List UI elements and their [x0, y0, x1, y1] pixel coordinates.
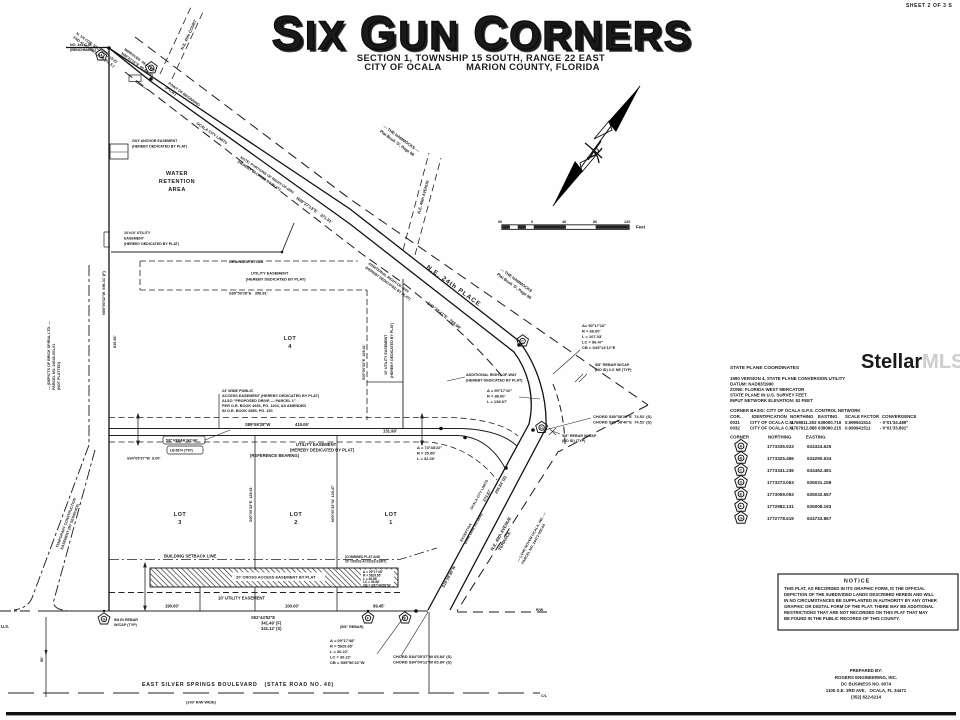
- svg-text:STATE PLANE IN U.S. SURVEY FEE: STATE PLANE IN U.S. SURVEY FEET: [730, 393, 807, 398]
- svg-text:(352) 622-6214: (352) 622-6214: [851, 695, 882, 700]
- svg-text:GUY ANCHOR EASEMENT: GUY ANCHOR EASEMENT: [132, 139, 178, 143]
- svg-text:635008.193: 635008.193: [807, 504, 832, 509]
- svg-text:PER O.R. BOOK 4936, PG. 1204,: PER O.R. BOOK 4936, PG. 1204, AS AMENDED: [222, 404, 306, 408]
- svg-text:(HEREBY DEDICATED BY PLAT): (HEREBY DEDICATED BY PLAT): [132, 145, 188, 149]
- svg-text:1773059.093: 1773059.093: [767, 492, 794, 497]
- svg-text:2: 2: [294, 520, 298, 526]
- svg-text:(NOT PLATTED): (NOT PLATTED): [57, 361, 61, 390]
- svg-text:341.12' (S): 341.12' (S): [261, 626, 282, 631]
- svg-text:S89°59'28"W: S89°59'28"W: [245, 422, 270, 427]
- svg-text:(HEREBY DEDICATED BY PLAT): (HEREBY DEDICATED BY PLAT): [124, 242, 180, 246]
- svg-text:(REFERENCE BEARING): (REFERENCE BEARING): [250, 453, 300, 458]
- svg-text:C: C: [521, 339, 524, 343]
- svg-text:UTILITY EASEMENT: UTILITY EASEMENT: [296, 442, 337, 447]
- svg-text:EAST SILVER SPRINGS BOULEVA: EAST SILVER SPRINGS BOULEVARD: [142, 682, 258, 688]
- svg-text:ACCESS EASEMENT (HEREBY DEDICA: ACCESS EASEMENT (HEREBY DEDICATED BY PLA…: [222, 394, 320, 398]
- svg-text:1773325.466: 1773325.466: [767, 456, 794, 461]
- svg-text:4: 4: [288, 344, 292, 350]
- svg-text:1772982.131: 1772982.131: [767, 504, 794, 509]
- svg-text:10'x10' UTILITY: 10'x10' UTILITY: [124, 231, 151, 235]
- svg-text:SIX GUN CORNERS: SIX GUN CORNERS: [272, 6, 693, 59]
- svg-text:CHORD S89°58'40"E 74.51' (S: CHORD S89°58'40"E 74.51' (S): [593, 420, 652, 425]
- svg-text:LOT: LOT: [385, 512, 398, 518]
- svg-text:CITY OF OCALA C.M.: CITY OF OCALA C.M.: [750, 420, 794, 425]
- svg-text:(HEREBY DEDICATED BY PLAT): (HEREBY DEDICATED BY PLAT): [246, 277, 306, 282]
- svg-text:A: A: [740, 444, 743, 449]
- svg-text:ADDITIONAL RIGHT-OF-WAY: ADDITIONAL RIGHT-OF-WAY: [466, 373, 517, 377]
- svg-text:Δ = 09°17'48": Δ = 09°17'48": [330, 638, 355, 643]
- svg-text:NOTICE: NOTICE: [844, 579, 870, 585]
- svg-text:MARION COUNTY, FLORIDA: MARION COUNTY, FLORIDA: [466, 62, 600, 72]
- svg-text:341.49' (F): 341.49' (F): [261, 621, 282, 626]
- svg-text:L = 138.67': L = 138.67': [487, 399, 507, 404]
- svg-text:L = 32.20': L = 32.20': [417, 456, 435, 461]
- svg-text:1772778.619: 1772778.619: [767, 516, 794, 521]
- svg-text:UTILITY EASEMENT: UTILITY EASEMENT: [251, 271, 289, 276]
- svg-text:S89°59'28"E 358.81': S89°59'28"E 358.81': [229, 291, 268, 296]
- svg-text:IN O.R. BOOK 4985, PG. 150: IN O.R. BOOK 4985, PG. 150: [222, 409, 273, 413]
- svg-text:INPUT NETWORK ELEVATION: 52 FE: INPUT NETWORK ELEVATION: 52 FEET: [730, 398, 813, 403]
- svg-text:CITY OF OCALA: CITY OF OCALA: [364, 62, 441, 72]
- svg-text:24' WIDE PUBLIC: 24' WIDE PUBLIC: [222, 389, 254, 393]
- svg-text:(NO ID) 0.3' NE (TYP): (NO ID) 0.3' NE (TYP): [595, 368, 632, 372]
- svg-text:CB = S55°56'22"W: CB = S55°56'22"W: [330, 660, 365, 665]
- svg-text:L = 107.33': L = 107.33': [582, 334, 602, 339]
- svg-text:— (DEPICTS OF BRICK SPIRAL LTD: — (DEPICTS OF BRICK SPIRAL LTD. —: [47, 321, 51, 390]
- svg-text:ZONE: FLORIDA WEST MERCATOR: ZONE: FLORIDA WEST MERCATOR: [730, 387, 805, 392]
- svg-text:(100' R/W WIDE): (100' R/W WIDE): [186, 700, 217, 705]
- svg-text:50': 50': [39, 657, 44, 662]
- svg-text:R = 68.00': R = 68.00': [582, 329, 600, 334]
- svg-text:CHORD S84°04'12"W 65.84' (S: CHORD S84°04'12"W 65.84' (S): [393, 660, 452, 665]
- svg-text:W/CAP (TYP): W/CAP (TYP): [114, 623, 138, 627]
- svg-text:CITY OF OCALA C.M.: CITY OF OCALA C.M.: [750, 426, 794, 431]
- svg-text:LOT: LOT: [174, 512, 187, 518]
- svg-text:StellarMLS: StellarMLS: [861, 351, 960, 373]
- svg-text:EASEMENT: EASEMENT: [124, 237, 145, 241]
- svg-text:634733.867: 634733.867: [807, 516, 832, 521]
- svg-text:635032.557: 635032.557: [807, 492, 832, 497]
- svg-text:R = 5829.65': R = 5829.65': [330, 644, 353, 649]
- svg-text:(NO ID) (TYP): (NO ID) (TYP): [562, 439, 586, 443]
- svg-text:Δ = 73°48'22": Δ = 73°48'22": [417, 445, 442, 450]
- svg-text:DATUM: NAD83/1990: DATUM: NAD83/1990: [730, 382, 774, 387]
- svg-text:20' CROSS ACCESS EASEMENT BY P: 20' CROSS ACCESS EASEMENT BY PLAT: [236, 575, 316, 580]
- svg-text:0032: 0032: [730, 426, 740, 431]
- svg-text:CHORD S89°58'23"E 74.51' (S: CHORD S89°58'23"E 74.51' (S): [593, 414, 652, 419]
- svg-text:STATE PLANE COORDINATES: STATE PLANE COORDINATES: [730, 365, 800, 371]
- svg-text:0: 0: [531, 220, 533, 224]
- svg-text:EASTING: EASTING: [806, 435, 826, 440]
- svg-text:IDENTIFICATION: IDENTIFICATION: [752, 414, 787, 419]
- svg-text:Δ= 90°17'10": Δ= 90°17'10": [582, 323, 606, 328]
- svg-text:ROGERS ENGINEERING, INC.: ROGERS ENGINEERING, INC.: [835, 675, 897, 680]
- svg-text:635031.158: 635031.158: [807, 480, 832, 485]
- svg-text:SHEET 2 OF 3 S: SHEET 2 OF 3 S: [906, 3, 953, 9]
- svg-text:10' UTILITY EASEMENT: 10' UTILITY EASEMENT: [384, 334, 388, 375]
- svg-text:THIS PLAT, AS RECORDED IN ITS: THIS PLAT, AS RECORDED IN ITS GRAPHIC FO…: [784, 586, 925, 591]
- svg-text:(HEREBY DEDICATED BY PLAT): (HEREBY DEDICATED BY PLAT): [290, 448, 355, 453]
- svg-text:Δ = 90°17'10": Δ = 90°17'10": [487, 388, 512, 393]
- svg-text:5/8 IN REBAR: 5/8 IN REBAR: [114, 618, 138, 622]
- svg-text:(COMBINED PLAT AND: (COMBINED PLAT AND: [345, 555, 381, 559]
- svg-text:CORNER: CORNER: [730, 435, 750, 440]
- svg-text:A: A: [100, 53, 103, 57]
- svg-text:AREA: AREA: [168, 187, 186, 193]
- svg-text:- 0°01'33.891": - 0°01'33.891": [880, 426, 908, 431]
- svg-text:- 0°01'34.489": - 0°01'34.489": [880, 420, 908, 425]
- svg-text:419.06': 419.06': [295, 422, 309, 427]
- svg-text:1: 1: [389, 520, 393, 526]
- svg-text:639000.719: 639000.719: [818, 420, 842, 425]
- svg-text:CB = S45°14'12"E: CB = S45°14'12"E: [582, 345, 616, 350]
- svg-text:(HEREBY DEDICATED BY PLAT): (HEREBY DEDICATED BY PLAT): [390, 322, 394, 378]
- svg-text:D: D: [540, 426, 543, 430]
- svg-text:100.00': 100.00': [285, 604, 299, 609]
- svg-text:S52°44'52"E: S52°44'52"E: [251, 615, 275, 620]
- svg-text:120: 120: [624, 220, 630, 224]
- svg-text:RETENTION: RETENTION: [159, 179, 195, 185]
- svg-text:DC BUSINESS NO. 6074: DC BUSINESS NO. 6074: [841, 682, 892, 687]
- svg-text:NORTHING: NORTHING: [790, 414, 814, 419]
- svg-text:99.45': 99.45': [373, 604, 384, 609]
- svg-text:E: E: [740, 492, 743, 497]
- svg-text:CORNER BASIS: CITY OF OCALA G.: CORNER BASIS: CITY OF OCALA G.P.S. CONTR…: [730, 408, 861, 413]
- svg-text:5/8" REBAR W/CAP: 5/8" REBAR W/CAP: [562, 434, 597, 438]
- svg-text:S00°00'32"E 129.41': S00°00'32"E 129.41': [362, 344, 366, 380]
- svg-text:1773273.063: 1773273.063: [767, 480, 794, 485]
- svg-text:LOT: LOT: [290, 512, 303, 518]
- svg-text:B: B: [740, 456, 743, 461]
- svg-text:60: 60: [498, 220, 502, 224]
- svg-text:634462.481: 634462.481: [807, 468, 832, 473]
- svg-text:5/8" REBAR W/CAP: 5/8" REBAR W/CAP: [595, 363, 630, 367]
- svg-text:Feet: Feet: [636, 225, 646, 230]
- svg-text:L = 30.22': L = 30.22': [330, 649, 348, 654]
- svg-text:ALSO "PROPOSED DRIVE — PARCEL: ALSO "PROPOSED DRIVE — PARCEL 1": [222, 399, 296, 403]
- svg-text:1773341.236: 1773341.236: [767, 468, 794, 473]
- svg-text:CB = S57°46'08"W: CB = S57°46'08"W: [363, 584, 391, 588]
- svg-text:0.999941514: 0.999941514: [845, 420, 871, 425]
- svg-text:S00°00'32"E 129.41': S00°00'32"E 129.41': [249, 486, 253, 522]
- svg-text:D: D: [740, 480, 743, 485]
- svg-text:R/W: R/W: [536, 608, 544, 612]
- svg-text:PARCEL NO. 24043-001-01: PARCEL NO. 24043-001-01: [52, 344, 56, 390]
- svg-text:20' CROSS ACCESS ESMT): 20' CROSS ACCESS ESMT): [345, 560, 386, 564]
- svg-text:BE FOUND IN THE PUBLIC RECORDS: BE FOUND IN THE PUBLIC RECORDS OF THIS C…: [784, 616, 900, 621]
- svg-text:(HEREBY DEDICATED BY PLAT): (HEREBY DEDICATED BY PLAT): [466, 379, 523, 383]
- svg-text:5/8" REBAR W/CAP: 5/8" REBAR W/CAP: [166, 439, 198, 443]
- svg-text:634290.634: 634290.634: [807, 456, 832, 461]
- svg-text:RESTRICTIONS THAT ARE NOT RECO: RESTRICTIONS THAT ARE NOT RECORDED ON TH…: [784, 610, 928, 615]
- svg-text:634324.625: 634324.625: [807, 444, 832, 449]
- svg-text:LC = 96.47': LC = 96.47': [582, 340, 603, 345]
- svg-text:1105 S.E. 3RD AVE. OCALA,: 1105 S.E. 3RD AVE. OCALA, FL 34471: [826, 688, 907, 693]
- svg-text:COR.: COR.: [730, 414, 741, 419]
- svg-text:C/L: C/L: [541, 694, 548, 698]
- svg-text:10' UTILITY EASEMENT: 10' UTILITY EASEMENT: [218, 596, 265, 601]
- svg-text:80: 80: [593, 220, 597, 224]
- svg-text:CONVERGENCE: CONVERGENCE: [882, 414, 916, 419]
- svg-text:SCALE FACTOR: SCALE FACTOR: [845, 414, 880, 419]
- svg-text:N00°00'32"W 129.47': N00°00'32"W 129.47': [331, 485, 335, 522]
- svg-text:3: 3: [178, 520, 182, 526]
- svg-text:PREPARED BY:: PREPARED BY:: [850, 668, 883, 673]
- svg-text:U.S.: U.S.: [1, 624, 9, 629]
- svg-text:(STATE ROAD NO. 40): (STATE ROAD NO. 40): [260, 682, 334, 688]
- svg-text:G: G: [103, 617, 106, 621]
- svg-text:R = 25.00': R = 25.00': [417, 451, 435, 456]
- svg-text:C: C: [740, 468, 743, 473]
- svg-text:DEPICTION OF THE SUBDIVIDED LA: DEPICTION OF THE SUBDIVIDED LANDS DESCRI…: [784, 592, 934, 597]
- svg-text:WATER: WATER: [166, 171, 188, 177]
- svg-text:BUILDING SETBACK LINE: BUILDING SETBACK LINE: [164, 554, 217, 559]
- svg-text:1773336.533: 1773336.533: [767, 444, 794, 449]
- svg-text:816.46': 816.46': [113, 335, 117, 348]
- svg-text:EASTING: EASTING: [818, 414, 838, 419]
- svg-text:LB 6874 (TYP): LB 6874 (TYP): [170, 449, 193, 453]
- svg-text:LC = 30.22': LC = 30.22': [330, 655, 351, 660]
- svg-text:B: B: [150, 66, 153, 70]
- svg-text:S34°05'37"W 8.00': S34°05'37"W 8.00': [127, 457, 161, 461]
- svg-text:LOT: LOT: [284, 336, 297, 342]
- svg-text:40: 40: [562, 220, 566, 224]
- svg-text:190.00': 190.00': [165, 604, 179, 609]
- svg-text:131.99': 131.99': [383, 429, 397, 434]
- svg-text:G: G: [740, 516, 743, 521]
- svg-text:1768611.283: 1768611.283: [791, 420, 817, 425]
- svg-text:1767912.888: 1767912.888: [791, 426, 817, 431]
- svg-text:GRAPHIC OR DIGITAL FORM OF THE: GRAPHIC OR DIGITAL FORM OF THE PLAT. THE…: [784, 604, 934, 609]
- svg-text:0.999941511: 0.999941511: [845, 426, 871, 431]
- svg-text:639090.215: 639090.215: [818, 426, 842, 431]
- svg-text:R = 88.00': R = 88.00': [487, 394, 505, 399]
- svg-text:0031: 0031: [730, 420, 740, 425]
- svg-text:DRAINAGE ATLAS: DRAINAGE ATLAS: [229, 259, 264, 264]
- svg-text:NORTHING: NORTHING: [768, 435, 792, 440]
- svg-text:N00°00'32"W 696.31' (F): N00°00'32"W 696.31' (F): [102, 271, 106, 315]
- svg-text:IN NO CIRCUMSTANCES BE SUPPLAN: IN NO CIRCUMSTANCES BE SUPPLANTED IN AUT…: [784, 598, 938, 603]
- svg-text:1990 VERSION 4, STATE PLANE CO: 1990 VERSION 4, STATE PLANE CONVERSION U…: [730, 376, 845, 381]
- svg-text:(5/8" REBAR): (5/8" REBAR): [340, 625, 364, 629]
